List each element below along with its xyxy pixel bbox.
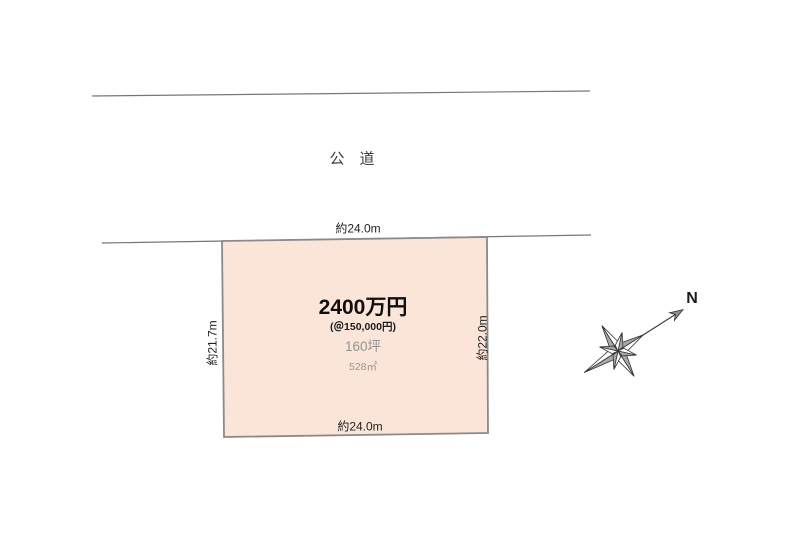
compass-star-points: [568, 310, 659, 398]
dimension-left: 約21.7m: [204, 320, 221, 365]
compass-north-arrow-head: [670, 306, 686, 321]
area-sqm-label: 528㎡: [263, 362, 463, 373]
compass-rose-icon: [568, 284, 699, 397]
dimension-bottom: 約24.0m: [337, 418, 382, 435]
price-label: 2400万円: [263, 297, 463, 318]
road-label: 公 道: [329, 148, 374, 169]
road-edge-line-top: [92, 91, 590, 96]
diagram-canvas: [0, 0, 800, 555]
compass-north-label: N: [686, 290, 698, 308]
area-tsubo-label: 160坪: [263, 340, 463, 354]
unit-price-label: (＠150,000円): [263, 322, 463, 333]
dimension-right: 約22.0m: [474, 315, 491, 360]
dimension-top: 約24.0m: [335, 220, 380, 237]
land-plot-diagram: 公 道 約24.0m 約24.0m 約21.7m 約22.0m 2400万円 (…: [0, 0, 800, 555]
parcel-info-block: 2400万円 (＠150,000円) 160坪 528㎡: [263, 297, 463, 373]
